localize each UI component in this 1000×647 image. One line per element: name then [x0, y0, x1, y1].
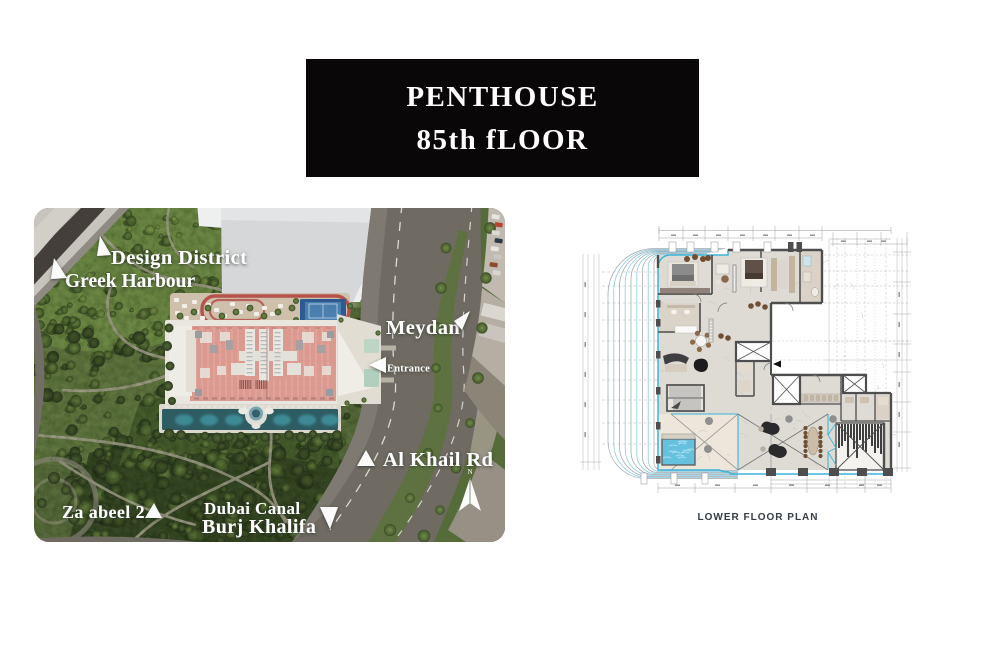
svg-text:Za abeel 2: Za abeel 2 — [62, 502, 145, 522]
svg-text:Greek Harbour: Greek Harbour — [65, 271, 196, 292]
svg-text:Burj Khalifa: Burj Khalifa — [202, 516, 316, 538]
svg-text:Design District: Design District — [111, 247, 247, 269]
svg-text:Entrance: Entrance — [387, 364, 430, 375]
svg-text:Meydan: Meydan — [386, 317, 460, 339]
svg-text:Al Khail Rd: Al Khail Rd — [383, 449, 494, 471]
